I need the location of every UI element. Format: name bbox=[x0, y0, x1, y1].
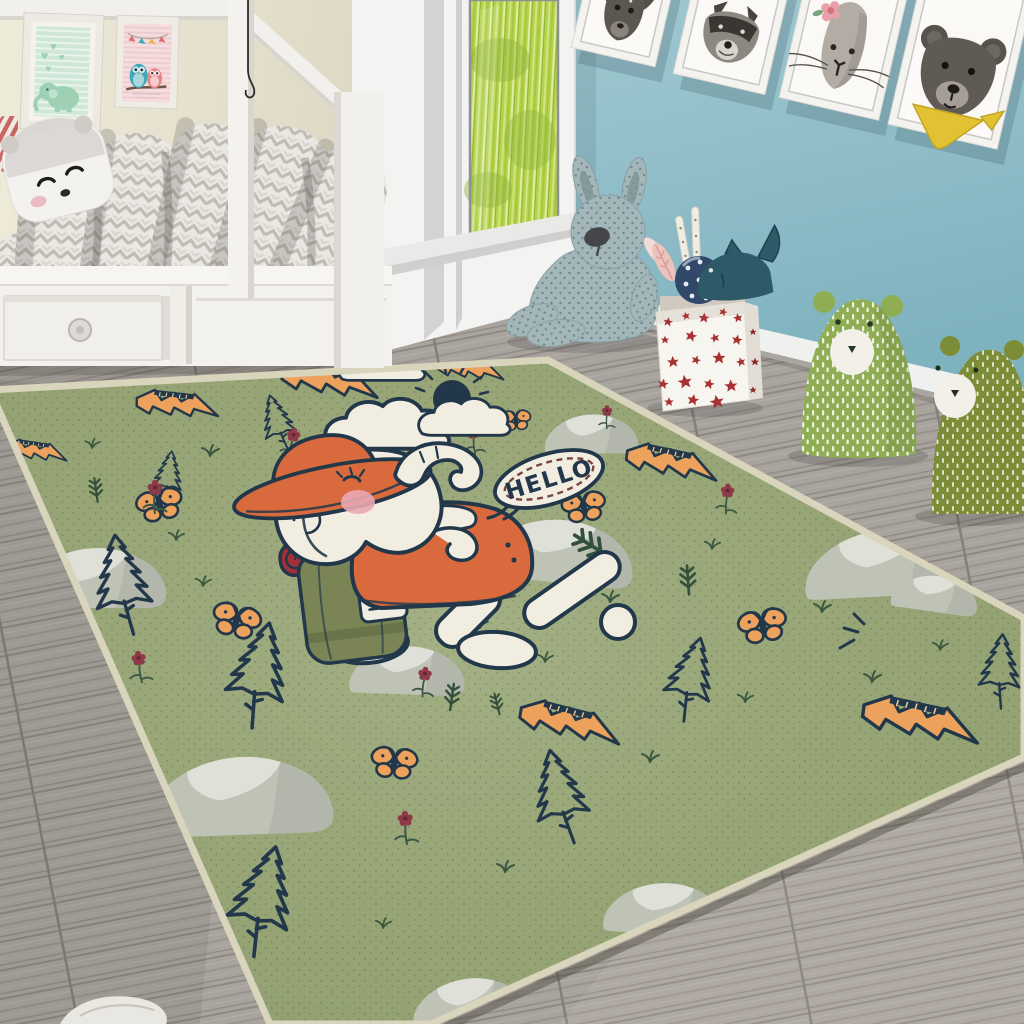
art-frame-mint: ♥ ♥ ♥ ♥ bbox=[20, 13, 104, 132]
bear-eye bbox=[973, 367, 978, 372]
room-svg: HELLO ♥ ♥ ♥ ♥ bbox=[0, 0, 1024, 1024]
bear-eye bbox=[867, 321, 873, 327]
heart-icon: ♥ bbox=[40, 52, 48, 62]
art-frame-pink bbox=[115, 15, 179, 109]
heart-icon: ♥ bbox=[50, 43, 57, 52]
heart-icon: ♥ bbox=[58, 54, 65, 62]
bear-eye bbox=[935, 365, 940, 370]
kids-room-photo: HELLO ♥ ♥ ♥ ♥ bbox=[0, 0, 1024, 1024]
bed-base bbox=[0, 266, 392, 366]
bed-foot-post bbox=[334, 92, 384, 368]
bear-ear bbox=[940, 336, 960, 356]
elephant-cheek bbox=[341, 490, 375, 514]
heart-icon: ♥ bbox=[45, 65, 52, 73]
bear-eye bbox=[835, 319, 841, 325]
bear-ear bbox=[813, 291, 835, 313]
